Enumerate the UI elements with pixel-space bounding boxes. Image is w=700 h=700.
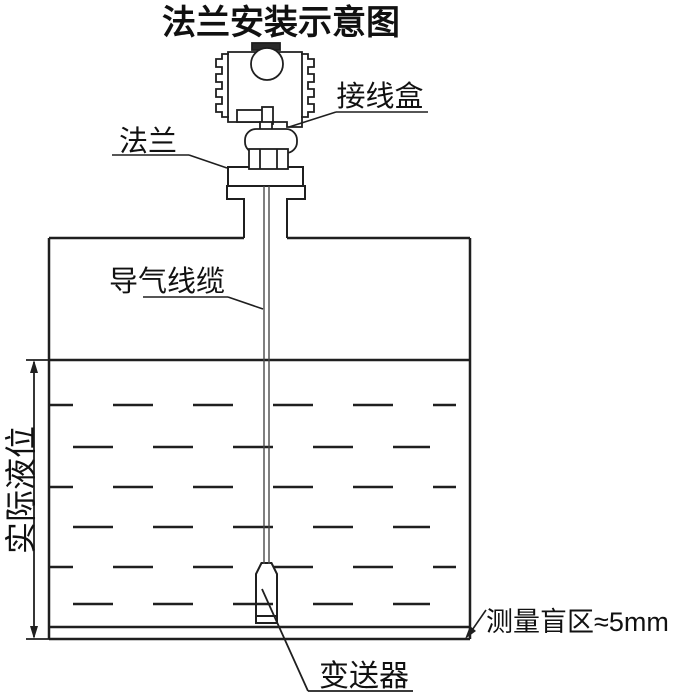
air-cable-label: 导气线缆 <box>109 265 225 298</box>
actual-level-label: 实际液位 <box>3 426 39 554</box>
dimension-arrow-down-icon <box>30 626 38 639</box>
diagram-canvas: 法兰安装示意图 <box>0 0 700 700</box>
dimension-arrow-up-icon <box>30 360 38 373</box>
junction-box-label: 接线盒 <box>336 80 423 113</box>
flange-installation-diagram: 法兰安装示意图 <box>0 0 700 700</box>
head-left-ribbed-cap <box>216 54 229 117</box>
liquid-dashes <box>49 405 456 604</box>
tank-nozzle <box>227 186 305 238</box>
air-cable-leader-line <box>228 297 263 309</box>
flange-label: 法兰 <box>119 125 177 158</box>
head-top-cap <box>251 48 283 80</box>
label-blind-zone: 测量盲区≈5mm <box>465 607 669 639</box>
hex-nut <box>249 149 288 169</box>
cable-line <box>264 186 269 564</box>
label-air-cable: 导气线缆 <box>109 265 263 309</box>
transmitter-label: 变送器 <box>319 660 409 693</box>
flange-leader-line <box>189 155 227 168</box>
tank-outline <box>49 238 470 639</box>
blind-zone-label: 测量盲区≈5mm <box>486 607 669 637</box>
conduit-connector <box>237 110 263 122</box>
head-right-ribbed-cap <box>301 54 314 117</box>
flange-assembly <box>227 167 305 238</box>
label-flange: 法兰 <box>112 125 227 168</box>
page-title: 法兰安装示意图 <box>162 4 400 42</box>
transmitter-head <box>216 43 314 169</box>
